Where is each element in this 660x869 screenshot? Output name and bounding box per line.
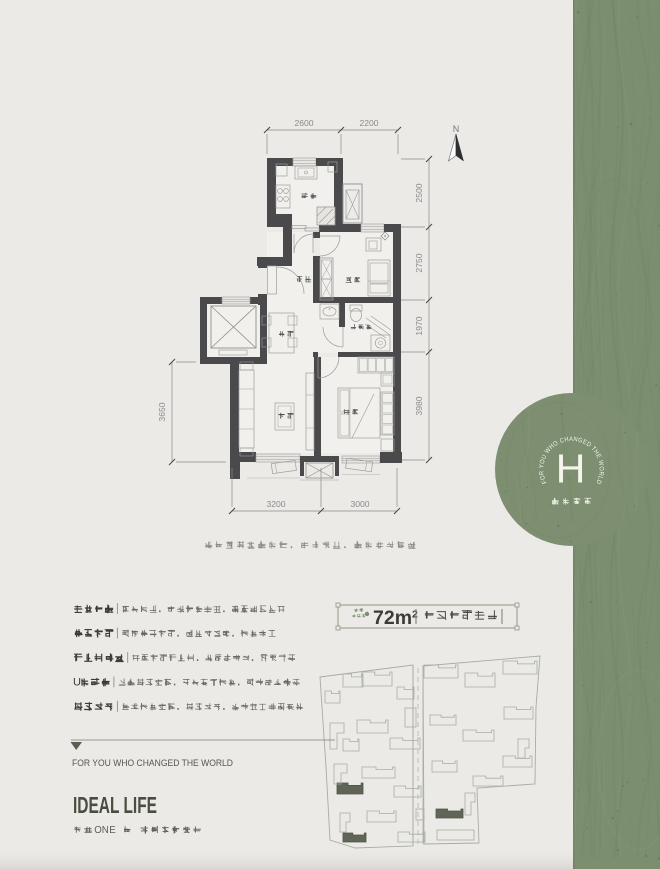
svg-text:IDEAL LIFE: IDEAL LIFE bbox=[73, 792, 157, 818]
svg-text:H: H bbox=[556, 446, 586, 492]
svg-text:E: E bbox=[109, 825, 116, 836]
svg-text:3980: 3980 bbox=[414, 396, 424, 415]
svg-text:1970: 1970 bbox=[414, 316, 424, 335]
svg-text:3200: 3200 bbox=[266, 499, 285, 509]
svg-text:2200: 2200 bbox=[359, 118, 378, 128]
svg-text:2500: 2500 bbox=[414, 183, 424, 202]
svg-text:2750: 2750 bbox=[414, 253, 424, 272]
svg-text:FOR YOU WHO CHANGED THE WORLD: FOR YOU WHO CHANGED THE WORLD bbox=[72, 758, 233, 769]
svg-text:N: N bbox=[102, 825, 109, 836]
svg-text:3650: 3650 bbox=[157, 402, 167, 421]
svg-text:2600: 2600 bbox=[294, 118, 313, 128]
svg-text:72m2: 72m2 bbox=[373, 607, 418, 629]
svg-text:3000: 3000 bbox=[350, 499, 369, 509]
svg-text:N: N bbox=[453, 124, 460, 134]
svg-text:U: U bbox=[73, 677, 81, 689]
